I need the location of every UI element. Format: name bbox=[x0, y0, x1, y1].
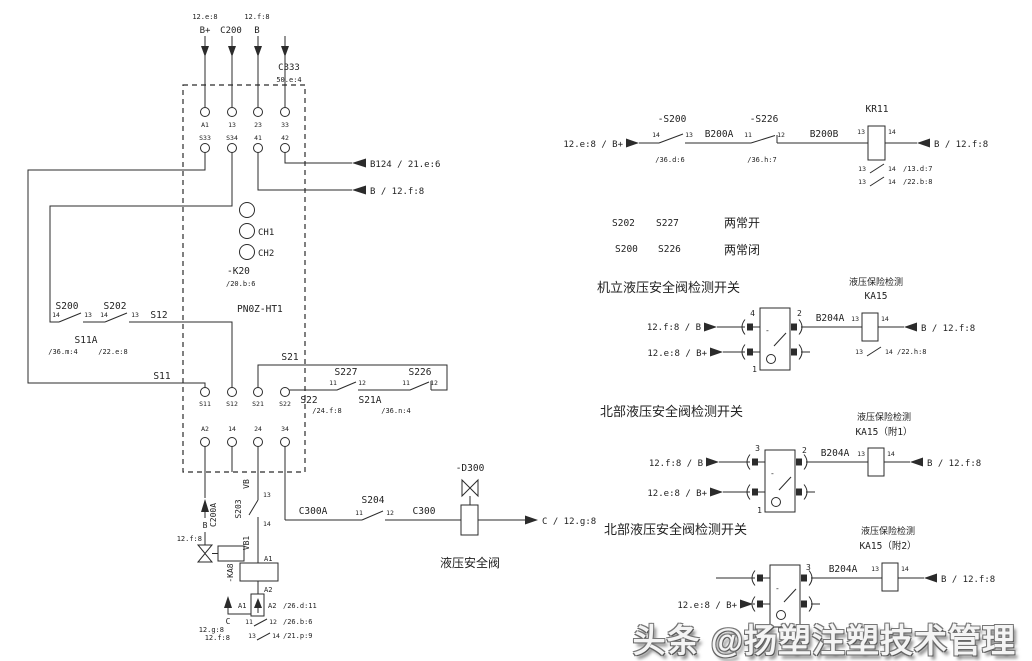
left-arrow-icon bbox=[904, 323, 917, 332]
c300-wire-label: C300 bbox=[413, 506, 436, 517]
terminal-label: 23 bbox=[254, 121, 262, 129]
terminal-num: 13 bbox=[263, 491, 271, 499]
terminal-num: 14 bbox=[52, 311, 60, 319]
k20-top-input-arrows bbox=[201, 36, 289, 107]
s203-label: S203 bbox=[234, 499, 243, 518]
d300-designator: -D300 bbox=[456, 463, 485, 474]
terminal-num: 13 bbox=[84, 311, 92, 319]
ch2-label: CH2 bbox=[258, 249, 274, 259]
terminal-num: 14 bbox=[100, 311, 108, 319]
terminal-label: 13 bbox=[228, 121, 236, 129]
s21a-ref1: /24.f:8 bbox=[312, 407, 342, 415]
b204a-wire-label: B204A bbox=[821, 448, 850, 459]
switch-chain-s200-s202: S200 14 13 S202 14 13 S12 S11A /36.m:4 /… bbox=[48, 301, 232, 388]
legend-item: 两常闭 bbox=[724, 243, 760, 257]
terminal-label: S22 bbox=[279, 400, 291, 408]
terminal-label: S21 bbox=[252, 400, 264, 408]
terminal-label: 34 bbox=[281, 425, 289, 433]
down-arrow-icon bbox=[201, 46, 209, 57]
s227-label: S227 bbox=[335, 367, 358, 378]
contact-ref: /21.p:9 bbox=[283, 632, 313, 640]
terminal-label: S12 bbox=[226, 400, 238, 408]
kr11-contact-ref: /22.b:8 bbox=[903, 178, 933, 186]
terminal-num: 14 bbox=[888, 165, 896, 173]
signal-c200: C200 bbox=[220, 26, 242, 36]
plug-pin bbox=[801, 601, 807, 608]
down-arrow-icon bbox=[228, 46, 236, 57]
block-heading: 北部液压安全阀检测开关 bbox=[604, 522, 747, 537]
vb-wire-label: VB bbox=[242, 479, 251, 489]
block-in1: 12.f:8 / B bbox=[649, 459, 703, 469]
left-arrow-icon bbox=[352, 159, 366, 168]
k20-indicators: CH1 CH2 bbox=[240, 203, 275, 260]
coil-a1: A1 bbox=[264, 555, 272, 563]
plug-pin bbox=[752, 489, 758, 496]
valve-caption: 液压安全阀 bbox=[440, 555, 500, 570]
b-signal-label: B bbox=[203, 521, 208, 530]
plug-pin bbox=[752, 459, 758, 466]
legend-item: S200 bbox=[615, 244, 638, 255]
top-ref-right: 12.f:8 bbox=[244, 13, 269, 21]
up-arrow-icon bbox=[201, 499, 209, 512]
terminal-num: 14 bbox=[263, 520, 271, 528]
valve-icon bbox=[198, 545, 212, 562]
plug-pin bbox=[801, 575, 807, 582]
terminal-num: 14 bbox=[881, 315, 889, 323]
c-ref-f: 12.f:8 bbox=[205, 634, 230, 642]
vb1-wire-label: VB1 bbox=[242, 536, 251, 551]
terminal-label: A1 bbox=[201, 121, 209, 129]
left-arrow-icon bbox=[352, 186, 366, 195]
legend-item: S226 bbox=[658, 244, 681, 255]
watermark: 头条 @扬塑注塑技术管理 bbox=[633, 614, 1016, 661]
s226r-label: -S226 bbox=[750, 114, 779, 125]
block-in1: 12.f:8 / B bbox=[647, 323, 701, 333]
terminal-num: 14 bbox=[887, 450, 895, 458]
pin-label: 1 bbox=[757, 506, 762, 515]
terminal-num: 14 bbox=[885, 348, 893, 356]
k20-terminals-mid: S33 S34 41 42 bbox=[199, 134, 289, 153]
left-arrow-icon bbox=[910, 458, 923, 467]
terminal-num: 14 bbox=[888, 128, 896, 136]
plug-pin bbox=[791, 349, 797, 356]
terminal-num: 13 bbox=[131, 311, 139, 319]
plug-pin bbox=[757, 575, 763, 582]
block-heading: 北部液压安全阀检测开关 bbox=[600, 404, 743, 419]
down-arrow-icon bbox=[281, 46, 289, 57]
k20-model: PN0Z-HT1 bbox=[237, 304, 283, 315]
terminal-num: 13 bbox=[851, 315, 859, 323]
block-in2: 12.e:8 / B+ bbox=[677, 601, 737, 611]
svg-text:-: - bbox=[775, 584, 780, 593]
pin-label: 4 bbox=[750, 309, 755, 318]
s11a-wire-label: S11A bbox=[75, 335, 98, 346]
pin-label: 2 bbox=[802, 446, 807, 455]
s22-wire-label: S22 bbox=[300, 395, 317, 406]
k20-device-boundary bbox=[183, 85, 305, 472]
contact-ref: /26.b:6 bbox=[283, 618, 313, 626]
pin-label: 3 bbox=[806, 563, 811, 572]
terminal-num: 14 bbox=[652, 131, 660, 139]
plug-pin bbox=[757, 601, 763, 608]
mini-a1: A1 bbox=[238, 602, 246, 610]
plug-pin bbox=[796, 459, 802, 466]
terminal-num: 13 bbox=[857, 128, 865, 136]
b-signal-ref: 12.f:8 bbox=[177, 535, 202, 543]
solenoid-box bbox=[218, 546, 244, 561]
ka15-designator: KA15（附2） bbox=[859, 540, 916, 552]
terminal-label: S11 bbox=[199, 400, 211, 408]
left-arrow-icon bbox=[917, 139, 930, 148]
left-arrow-icon bbox=[924, 574, 937, 583]
terminal-num: 13 bbox=[857, 450, 865, 458]
ka15-relay-box bbox=[882, 563, 898, 591]
contact-ref: /22.h:8 bbox=[897, 348, 927, 356]
pin-label: 2 bbox=[797, 309, 802, 318]
terminal-num: 12 bbox=[269, 618, 277, 626]
s204-label: S204 bbox=[362, 495, 385, 506]
c200a-wire-label: C200A bbox=[209, 503, 218, 527]
s226-label: S226 bbox=[409, 367, 432, 378]
hydraulic-safety-schematic: 12.e:8 12.f:8 B+ C200 B C333 50.e:4 A1 1… bbox=[0, 0, 1032, 661]
s226r-ref: /36.h:7 bbox=[747, 156, 777, 164]
down-arrow-icon bbox=[254, 46, 262, 57]
terminal-label: S33 bbox=[199, 134, 211, 142]
right-arrow-icon bbox=[525, 516, 538, 525]
c300-branch: C300A S204 11 12 C300 -D300 C / 12.g:8 液… bbox=[285, 463, 596, 570]
k20-terminals-bottom: S11 S12 S21 S22 A2 14 24 34 bbox=[199, 388, 291, 521]
terminal-num: 14 bbox=[901, 565, 909, 573]
signal-c333: C333 bbox=[278, 63, 300, 73]
terminal-num: 13 bbox=[858, 178, 866, 186]
svg-text:-: - bbox=[765, 326, 770, 335]
ka15-designator: KA15（附1） bbox=[855, 426, 912, 438]
b200b-wire-label: B200B bbox=[810, 129, 839, 140]
plug-pin bbox=[791, 324, 797, 331]
out-b124-label: B124 / 21.e:6 bbox=[370, 160, 440, 170]
terminal-label: A2 bbox=[201, 425, 209, 433]
valve-icon bbox=[462, 480, 478, 505]
legend-item: S227 bbox=[656, 218, 679, 229]
terminal-num: 13 bbox=[871, 565, 879, 573]
pin-label: 3 bbox=[755, 444, 760, 453]
detect-block-2: 北部液压安全阀检测开关 液压保险检测 KA15（附1） 12.f:8 / B 3… bbox=[600, 404, 981, 515]
ch1-label: CH1 bbox=[258, 228, 274, 238]
block-in2: 12.e:8 / B+ bbox=[647, 489, 707, 499]
right-arrow-icon bbox=[710, 348, 723, 357]
indicator-lamp-icon bbox=[240, 203, 255, 218]
detect-block-1: 机立液压安全阀检测开关 液压保险检测 KA15 12.f:8 / B 4 - 2… bbox=[597, 276, 975, 374]
s11a-ref2: /22.e:8 bbox=[98, 348, 128, 356]
svg-text:-: - bbox=[770, 469, 775, 478]
coil-a2: A2 bbox=[264, 586, 272, 594]
kr11-designator: KR11 bbox=[866, 104, 889, 115]
k20-designator: -K20 bbox=[227, 266, 250, 277]
mini-ref: /26.d:11 bbox=[283, 602, 317, 610]
out-b-label: B / 12.f:8 bbox=[370, 187, 424, 197]
signal-b: B bbox=[254, 26, 259, 36]
terminal-num: 12 bbox=[386, 509, 394, 517]
indicator-lamp-icon bbox=[240, 224, 255, 239]
s200r-label: -S200 bbox=[658, 114, 687, 125]
terminal-label: S34 bbox=[226, 134, 238, 142]
terminal-num: 12 bbox=[777, 131, 785, 139]
ka15-relay-box bbox=[868, 448, 884, 476]
terminal-label: 41 bbox=[254, 134, 262, 142]
relay-coil-box bbox=[240, 563, 278, 581]
c-ref-g: 12.g:8 bbox=[199, 626, 224, 634]
ka15-designator: KA15 bbox=[865, 291, 888, 302]
terminal-num: 14 bbox=[888, 178, 896, 186]
b204a-wire-label: B204A bbox=[816, 313, 845, 324]
kr11-output-label: B / 12.f:8 bbox=[934, 140, 988, 150]
terminal-label: 24 bbox=[254, 425, 262, 433]
k20-terminals-top: A1 13 23 33 bbox=[201, 108, 290, 130]
legend-item: S202 bbox=[612, 218, 635, 229]
block-in2: 12.e:8 / B+ bbox=[647, 349, 707, 359]
plug-pin bbox=[747, 349, 753, 356]
s200r-ref: /36.d:6 bbox=[655, 156, 685, 164]
ka8-designator: -KA8 bbox=[226, 563, 235, 582]
terminal-num: 11 bbox=[402, 379, 410, 387]
c300a-wire-label: C300A bbox=[299, 506, 328, 517]
terminal-num: 13 bbox=[858, 165, 866, 173]
legend-item: 两常开 bbox=[724, 216, 760, 230]
s11-wire-label: S11 bbox=[153, 371, 170, 382]
terminal-num: 13 bbox=[248, 632, 256, 640]
pin-label: 1 bbox=[752, 365, 757, 374]
right-arrow-icon bbox=[740, 600, 753, 609]
b204a-wire-label: B204A bbox=[829, 564, 858, 575]
up-arrow-icon bbox=[224, 596, 232, 608]
terminal-num: 13 bbox=[855, 348, 863, 356]
s11a-ref1: /36.m:4 bbox=[48, 348, 78, 356]
kr11-relay-box bbox=[868, 126, 885, 160]
kr11-contact-ref: /13.d:7 bbox=[903, 165, 933, 173]
right-arrow-icon bbox=[706, 458, 719, 467]
c-out-label: C / 12.g:8 bbox=[542, 517, 596, 527]
terminal-num: 11 bbox=[744, 131, 752, 139]
block-out: B / 12.f:8 bbox=[927, 459, 981, 469]
c333-ref: 50.e:4 bbox=[276, 76, 301, 84]
ka15-relay-box bbox=[862, 313, 878, 341]
terminal-num: 13 bbox=[685, 131, 693, 139]
s12-wire-label: S12 bbox=[150, 310, 167, 321]
right-arrow-icon bbox=[710, 488, 723, 497]
k20-ref: /20.b:6 bbox=[226, 280, 256, 288]
block-tag: 液压保险检测 bbox=[849, 276, 903, 287]
indicator-lamp-icon bbox=[240, 245, 255, 260]
terminal-label: 42 bbox=[281, 134, 289, 142]
plug-pin bbox=[796, 489, 802, 496]
c-signal-label: C bbox=[226, 617, 231, 626]
terminal-num: 14 bbox=[272, 632, 280, 640]
terminal-num: 11 bbox=[355, 509, 363, 517]
signal-bplus: B+ bbox=[200, 26, 211, 36]
block-heading: 机立液压安全阀检测开关 bbox=[597, 280, 740, 295]
s21a-ref2: /36.n:4 bbox=[381, 407, 411, 415]
schematic-page: 12.e:8 12.f:8 B+ C200 B C333 50.e:4 A1 1… bbox=[0, 0, 1032, 661]
block-tag: 液压保险检测 bbox=[861, 525, 915, 536]
contact-legend: S202 S227 两常开 S200 S226 两常闭 bbox=[612, 216, 760, 257]
s21a-wire-label: S21A bbox=[359, 395, 382, 406]
block-out: B / 12.f:8 bbox=[921, 324, 975, 334]
terminal-num: 12 bbox=[430, 379, 438, 387]
terminal-num: 11 bbox=[245, 618, 253, 626]
terminal-num: 11 bbox=[329, 379, 337, 387]
kr11-row: 12.e:8 / B+ -S200 14 13 /36.d:6 B200A -S… bbox=[563, 104, 988, 186]
detect-block-3: 北部液压安全阀检测开关 液压保险检测 KA15（附2） - 3 B204A 13… bbox=[604, 522, 995, 627]
plug-pin bbox=[747, 324, 753, 331]
top-ref-left: 12.e:8 bbox=[192, 13, 217, 21]
d300-body bbox=[461, 505, 478, 535]
block-out: B / 12.f:8 bbox=[941, 575, 995, 585]
terminal-num: 12 bbox=[358, 379, 366, 387]
right-arrow-icon bbox=[704, 323, 717, 332]
mini-a2: A2 bbox=[268, 602, 276, 610]
right-arrow-icon bbox=[626, 139, 639, 148]
terminal-label: 14 bbox=[228, 425, 236, 433]
s21-wire-label: S21 bbox=[281, 352, 298, 363]
b200a-wire-label: B200A bbox=[705, 129, 734, 140]
block-tag: 液压保险检测 bbox=[857, 411, 911, 422]
kr11-input-label: 12.e:8 / B+ bbox=[563, 140, 623, 150]
terminal-label: 33 bbox=[281, 121, 289, 129]
